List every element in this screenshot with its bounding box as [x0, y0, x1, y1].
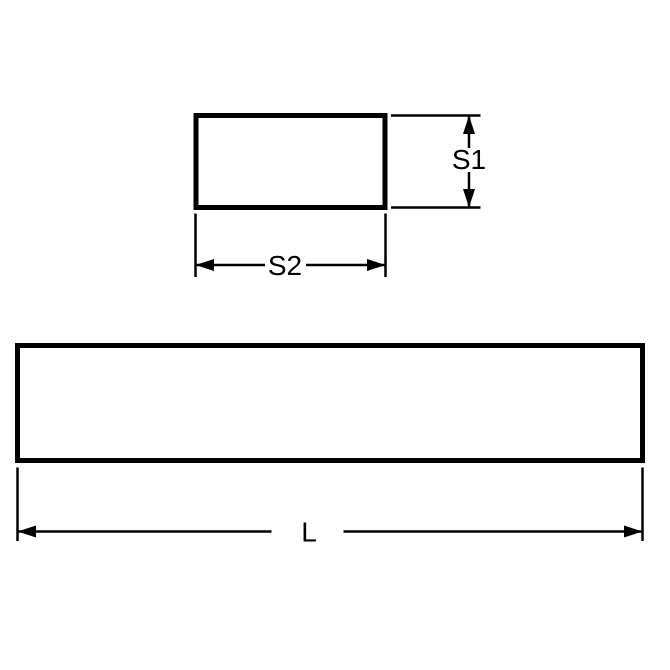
cross-section-view: S1 S2	[196, 116, 487, 282]
s2-arrow-right-icon	[367, 259, 386, 271]
s2-arrow-left-icon	[196, 259, 215, 271]
l-arrow-left-icon	[18, 526, 37, 538]
cross-section-rect	[196, 116, 385, 208]
s1-arrow-down-icon	[463, 189, 475, 208]
diagram-canvas: S1 S2 L	[0, 0, 670, 670]
bar-side-view: L	[18, 346, 643, 548]
s1-label: S1	[452, 144, 486, 175]
s1-arrow-up-icon	[463, 116, 475, 135]
l-label: L	[301, 517, 317, 548]
l-arrow-right-icon	[624, 526, 643, 538]
keystock-dimension-diagram: S1 S2 L	[0, 0, 670, 670]
s2-label: S2	[268, 250, 302, 281]
bar-rect	[18, 346, 643, 461]
